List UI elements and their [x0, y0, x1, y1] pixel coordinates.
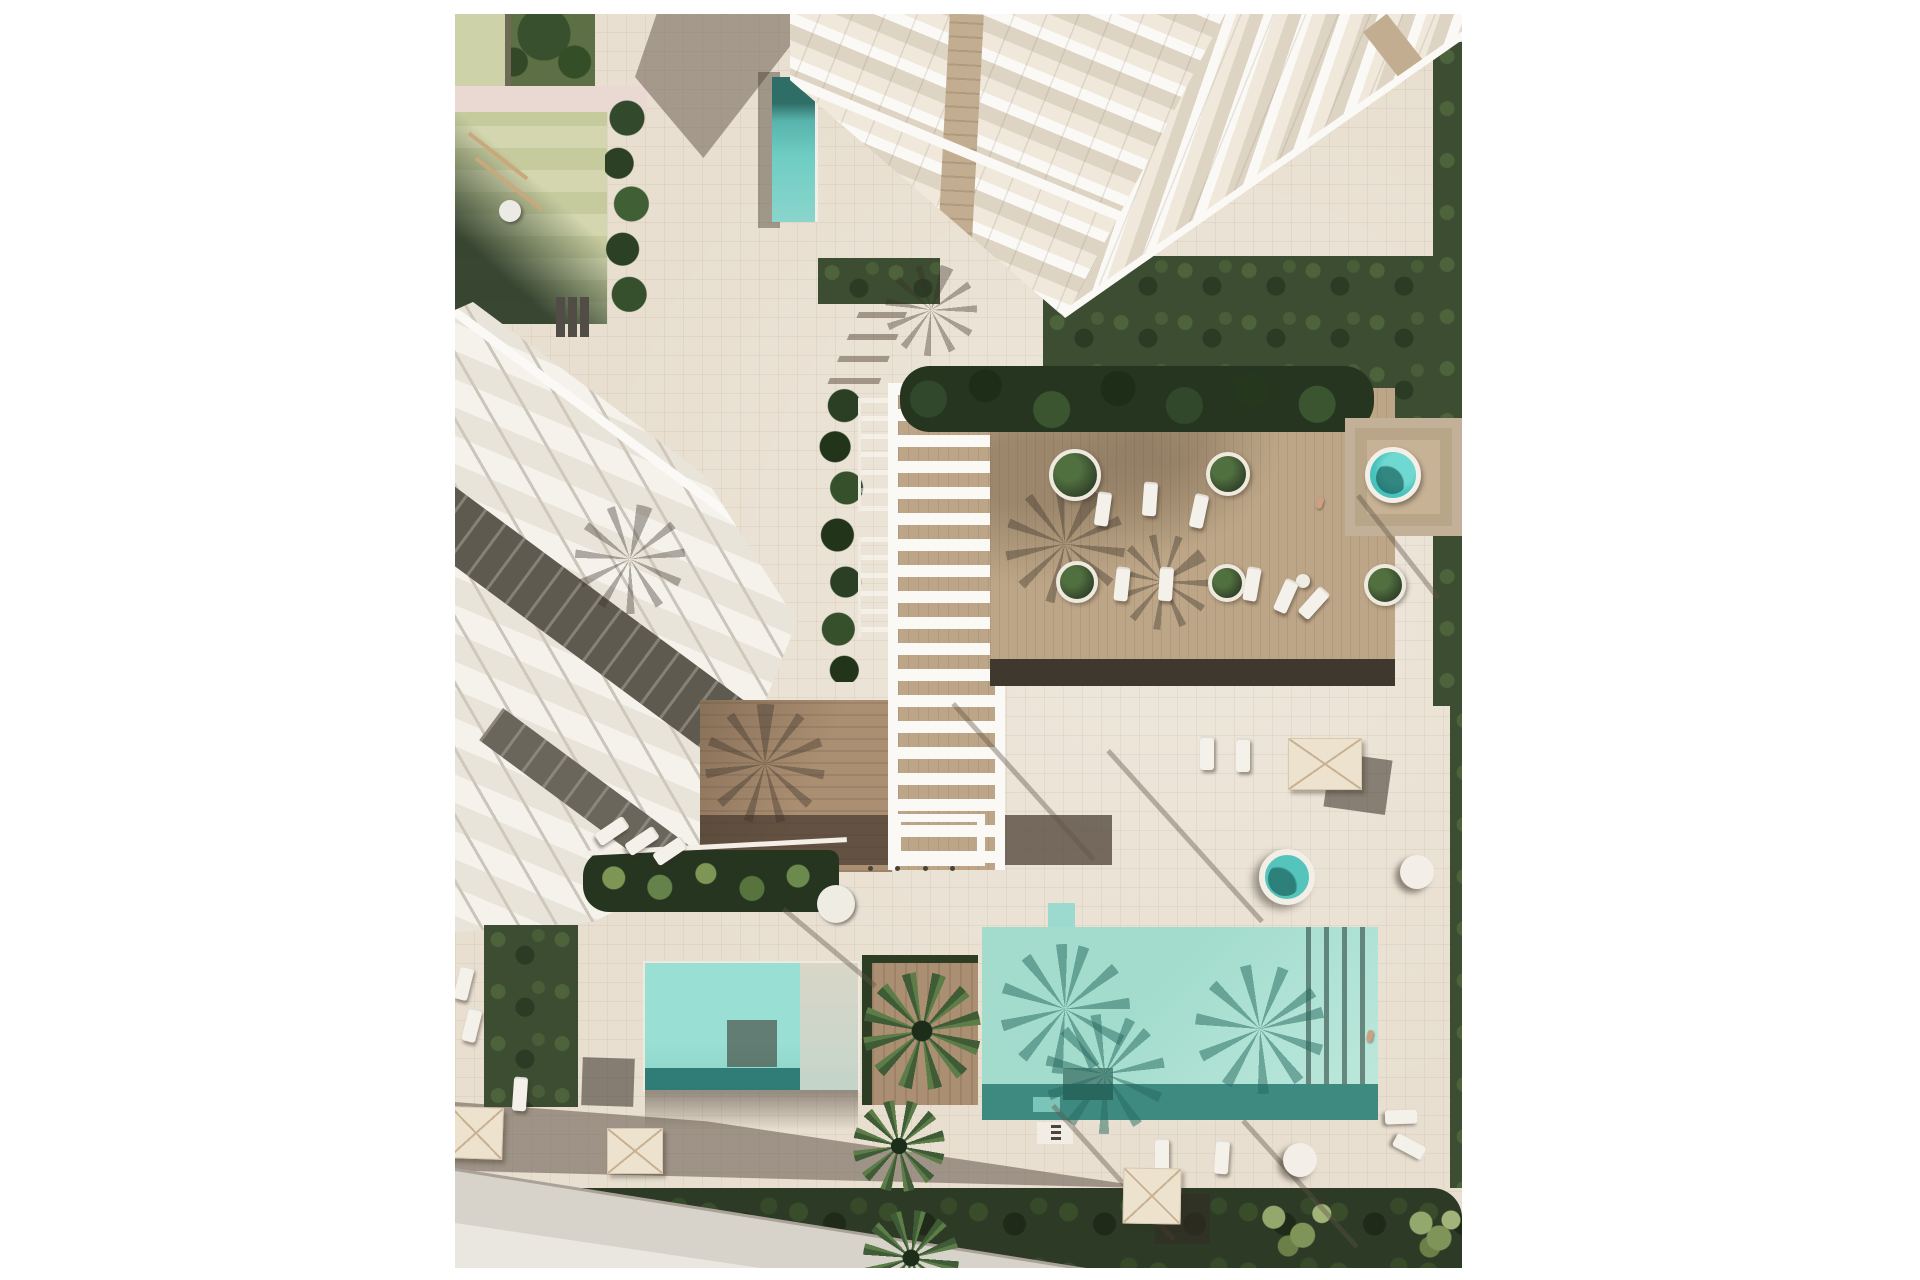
palm-trunk-shadow: [1106, 749, 1264, 923]
pool-shelf: [800, 963, 858, 1090]
round-planter: [1049, 449, 1101, 501]
pergola-portal: [893, 814, 985, 866]
round-planter: [1206, 452, 1250, 496]
round-planter: [1208, 564, 1246, 602]
round-planter: [1056, 561, 1098, 603]
leaf-plants: [1245, 1192, 1341, 1264]
east-lawn-strip: [1433, 42, 1462, 706]
sun-lounger: [512, 1077, 528, 1112]
playground-mat: [455, 112, 607, 324]
bollard: [923, 866, 928, 871]
parasol: [455, 1106, 504, 1160]
bollard: [950, 866, 955, 871]
sun-lounger: [461, 1007, 483, 1043]
pergola-slats: [888, 383, 1005, 870]
parasol: [1123, 1167, 1182, 1224]
east-lawn-strip: [1450, 706, 1462, 1188]
bench-slat: [556, 297, 565, 337]
palm-shadow: [705, 704, 825, 824]
umbrella-shadow: [581, 1057, 635, 1107]
sun-lounger: [1200, 736, 1214, 770]
sun-lounger: [1392, 1133, 1429, 1161]
tree-canopy: [900, 366, 1374, 432]
bench-slat: [580, 297, 589, 337]
round-table-umbrella: [817, 885, 855, 923]
upper-lap-pool: [772, 77, 818, 222]
pool-deep-edge: [645, 1068, 800, 1090]
playground-structure: [455, 14, 511, 92]
pool-steps: [1048, 903, 1075, 927]
parasol: [1288, 738, 1362, 790]
playground-hedge: [605, 100, 649, 326]
sun-lounger: [455, 965, 475, 1001]
render-page: Aerial top-down architectural rendering …: [0, 0, 1920, 1280]
bollard: [868, 866, 873, 871]
spa-pool: [1365, 447, 1421, 503]
sun-lounger: [1158, 567, 1174, 602]
leaf-plants: [1403, 1202, 1462, 1262]
hedge-band: [583, 850, 839, 912]
west-lawn: [484, 925, 578, 1107]
sun-lounger: [1214, 1140, 1230, 1175]
round-chair: [1283, 1143, 1317, 1177]
umbrella-shadow: [727, 1020, 777, 1067]
round-daybed: [1400, 855, 1434, 889]
round-planter: [1364, 564, 1406, 606]
bench-slat: [568, 297, 577, 337]
sun-lounger: [1142, 482, 1158, 517]
deck-shadow: [990, 659, 1395, 686]
jacuzzi-pool: [1259, 849, 1315, 905]
sun-lounger: [1155, 1138, 1169, 1172]
playground-umbrella: [499, 200, 521, 222]
aerial-render: [455, 14, 1462, 1268]
bollard: [895, 866, 900, 871]
sun-lounger: [1385, 1109, 1419, 1124]
pool-ladder: [1051, 1125, 1061, 1141]
parasol: [607, 1128, 663, 1174]
sun-lounger: [1236, 738, 1250, 772]
